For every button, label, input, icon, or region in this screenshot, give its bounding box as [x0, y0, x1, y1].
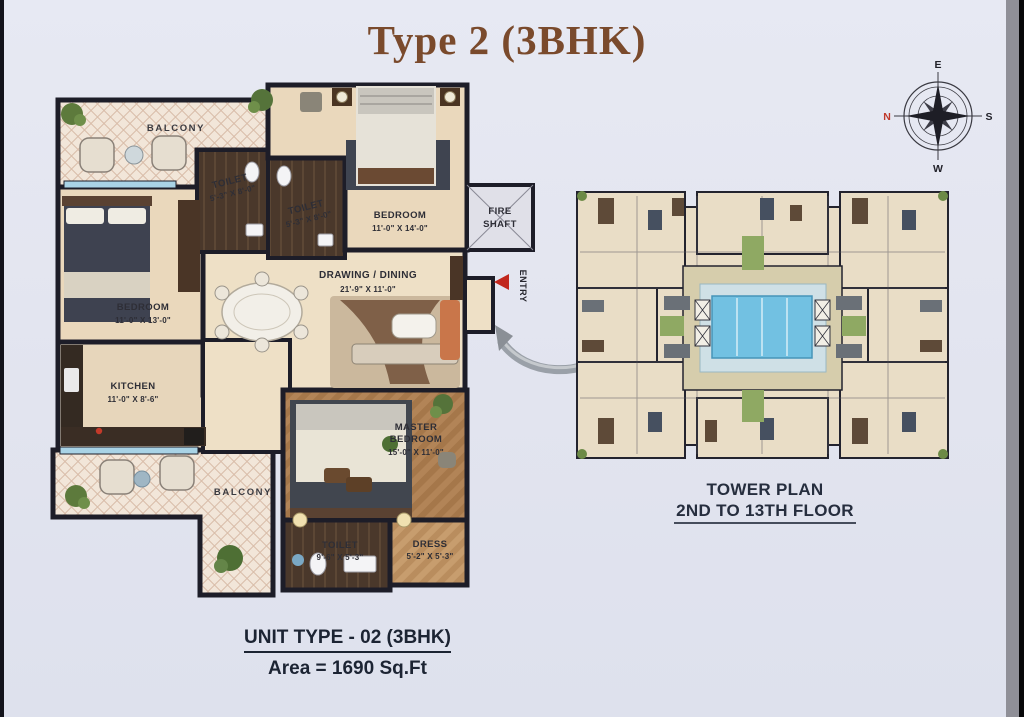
- dims-drawing-dining: 21'-9" X 11'-0": [340, 285, 396, 294]
- label-balcony-bottom: BALCONY: [214, 487, 272, 498]
- compass-east-label: E: [934, 59, 941, 71]
- tower-plan-caption: TOWER PLAN 2ND TO 13TH FLOOR: [640, 479, 890, 524]
- label-bedroom-left: BEDROOM: [117, 302, 169, 313]
- brochure-page: Type 2 (3BHK): [0, 0, 1024, 717]
- label-drawing-dining: DRAWING / DINING: [319, 270, 417, 281]
- tower-plan: [577, 191, 948, 459]
- window-strip: [60, 447, 198, 454]
- label-kitchen: KITCHEN: [110, 381, 155, 392]
- room-foyer: [465, 278, 493, 332]
- dims-master: 15'-0" X 11'-0": [388, 448, 444, 457]
- label-toilet-master: TOILET: [322, 540, 358, 551]
- entry-arrow-icon: [494, 274, 509, 290]
- unit-area-label: Area = 1690 Sq.Ft: [210, 658, 485, 680]
- dims-bedroom-left: 11'-0" X 13'-0": [115, 316, 171, 325]
- unit-floor-plan: ENTRY BALCONY TOILET 5'-3" X 8'-0" TOILE…: [53, 85, 533, 595]
- label-master-1: MASTER: [395, 422, 438, 433]
- unit-summary: UNIT TYPE - 02 (3BHK) Area = 1690 Sq.Ft: [210, 627, 485, 680]
- label-bedroom-top: BEDROOM: [374, 210, 426, 221]
- compass-south-label: S: [985, 111, 992, 123]
- screen-edge-right-black: [1019, 0, 1024, 717]
- dims-dress: 5'-2" X 5'-3": [407, 552, 454, 561]
- room-dining-extension: [203, 340, 290, 452]
- dims-toilet-master: 9'-6" X 5'-3": [317, 553, 364, 562]
- dims-kitchen: 11'-0" X 8'-6": [107, 395, 158, 404]
- dims-bedroom-top: 11'-0" X 14'-0": [372, 224, 428, 233]
- unit-type-label: UNIT TYPE - 02 (3BHK): [244, 627, 451, 653]
- screen-edge-right-gray: [1006, 0, 1019, 717]
- screen-edge-left: [0, 0, 4, 717]
- compass-north-label: N: [883, 111, 891, 123]
- tower-caption-line1: TOWER PLAN: [640, 479, 890, 500]
- label-balcony-top: BALCONY: [147, 123, 205, 134]
- tower-caption-line2: 2ND TO 13TH FLOOR: [674, 500, 856, 524]
- label-master-2: BEDROOM: [390, 434, 442, 445]
- compass-west-label: W: [933, 163, 943, 175]
- label-dress: DRESS: [413, 539, 448, 550]
- label-fire-shaft-1: FIRE: [488, 206, 511, 217]
- floor-plan-canvas: ENTRY BALCONY TOILET 5'-3" X 8'-0" TOILE…: [0, 0, 1024, 717]
- compass-rose-icon: E S W N: [883, 59, 992, 175]
- label-fire-shaft-2: SHAFT: [483, 219, 517, 230]
- entry-label: ENTRY: [518, 270, 528, 303]
- window-strip: [64, 181, 176, 188]
